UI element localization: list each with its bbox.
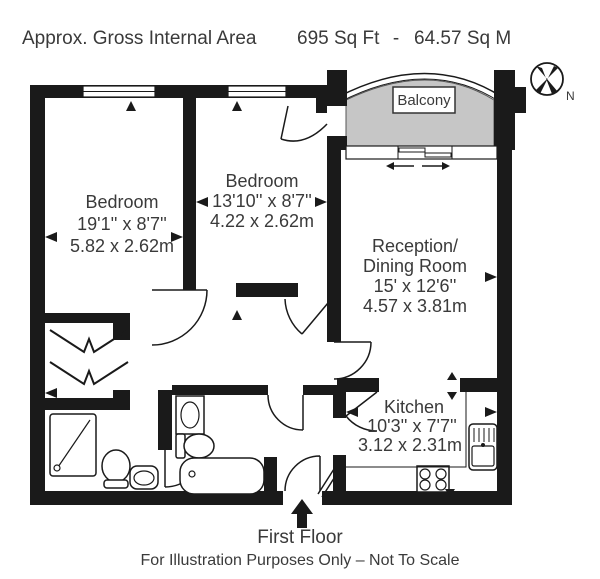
marker-window2-up [232,101,242,111]
door-entrance [285,456,320,491]
header: Approx. Gross Internal Area 695 Sq Ft - … [22,28,511,49]
door-bathroom [268,395,303,430]
sliding-arrow-left-head [386,162,394,170]
bifold-door-closet-bottom [50,362,128,384]
washbasin-bowl [181,402,199,428]
wall-lobby-lower [333,455,346,491]
balcony-area: Balcony [338,74,502,147]
toilet-a-icon [102,450,130,482]
outer-wall-bottom-right [322,491,512,505]
kitchen-label: Kitchen 10'3'' x 7'7'' 3.12 x 2.31m [358,397,462,455]
bedroom1-label: Bedroom 19'1'' x 8'7'' 5.82 x 2.62m [70,192,174,256]
header-area-m: 64.57 Sq M [414,28,511,49]
door-reception [334,342,371,379]
bedroom1-name: Bedroom [85,192,158,212]
wall-bathroom-top-left [172,385,268,395]
floor-label: First Floor [257,527,343,548]
balcony-wing-right [515,87,526,113]
reception-label: Reception/ Dining Room 15' x 12'6'' 4.57… [363,236,467,316]
closet-stub-top [113,313,130,340]
marker-kitchen-right [485,407,497,417]
wall-kitchen-stub-right [460,378,497,392]
marker-closet-left [45,388,57,398]
wall-showerroom-right [158,390,172,450]
sliding-door-panel-right [425,153,451,157]
reception-dim-metric: 4.57 x 3.81m [363,296,467,316]
floorplan-page: Approx. Gross Internal Area 695 Sq Ft - … [0,0,600,579]
compass: N [531,63,575,103]
header-separator: - [393,28,399,49]
sliding-door-panel-left [399,148,425,152]
bathtub-tap [189,471,195,477]
toilet-b-icon [184,434,214,458]
toilet-a-base [104,480,128,488]
wall-bedroom2-hall [236,283,298,297]
marker-reception-right [485,272,497,282]
sliding-arrow-right-head [442,162,450,170]
header-area-ft: 695 Sq Ft [297,28,380,49]
marker-opening-down [447,392,457,400]
balcony-wing-left [316,87,327,113]
bedroom1-dim-metric: 5.82 x 2.62m [70,236,174,256]
marker-opening-up [447,372,457,380]
kitchen-name: Kitchen [384,397,444,417]
hob-ring-3 [420,480,430,490]
balcony-wall-right [494,70,515,150]
bedroom2-dim-imperial: 13'10'' x 8'7'' [212,191,312,211]
wall-lobby-upper [333,385,346,418]
marker-hall-up [232,310,242,320]
reception-name-line1: Reception/ [372,236,458,256]
bedroom2-name: Bedroom [225,171,298,191]
sink-tap [481,443,485,447]
disclaimer-text: For Illustration Purposes Only – Not To … [141,552,460,569]
balcony-label: Balcony [397,92,451,109]
kitchen-dim-metric: 3.12 x 2.31m [358,435,462,455]
balcony-wall-left-upper [327,70,347,106]
marker-window1-up [126,101,136,111]
wall-bathroom-right [264,457,277,491]
marker-bedroom2-left [196,197,208,207]
outer-wall-right [497,145,512,505]
outer-wall-left [30,85,45,505]
marker-bedroom1-left [45,232,57,242]
reception-name-line2: Dining Room [363,256,467,276]
outer-wall-top [30,85,346,98]
bedroom1-dim-imperial: 19'1'' x 8'7'' [77,214,167,234]
hob-ring-4 [436,480,446,490]
bedroom2-dim-metric: 4.22 x 2.62m [210,211,314,231]
hob-ring-2 [436,469,446,479]
floorplan-svg: Approx. Gross Internal Area 695 Sq Ft - … [0,0,600,579]
wall-bathroom-top-right [303,385,333,395]
sink-basin [472,446,494,466]
bedroom2-label: Bedroom 13'10'' x 8'7'' 4.22 x 2.62m [210,171,314,231]
door-bedroom2 [285,297,333,334]
wall-bedroom1-bedroom2 [183,98,196,290]
wall-bedroom2-reception [327,137,341,342]
footer: First Floor For Illustration Purposes On… [141,499,460,569]
hand-basin-bowl [134,471,154,485]
door-bedroom1 [152,290,207,345]
kitchen-dim-imperial: 10'3'' x 7'7'' [367,416,457,436]
shower-drain-icon [54,465,60,471]
marker-bedroom2-right [315,197,327,207]
header-title: Approx. Gross Internal Area [22,28,257,49]
hob-ring-1 [420,469,430,479]
entrance-arrow-icon [291,499,313,528]
closet-stub-bottom [113,390,130,410]
reception-dim-imperial: 15' x 12'6'' [374,276,457,296]
compass-north-label: N [566,89,575,103]
